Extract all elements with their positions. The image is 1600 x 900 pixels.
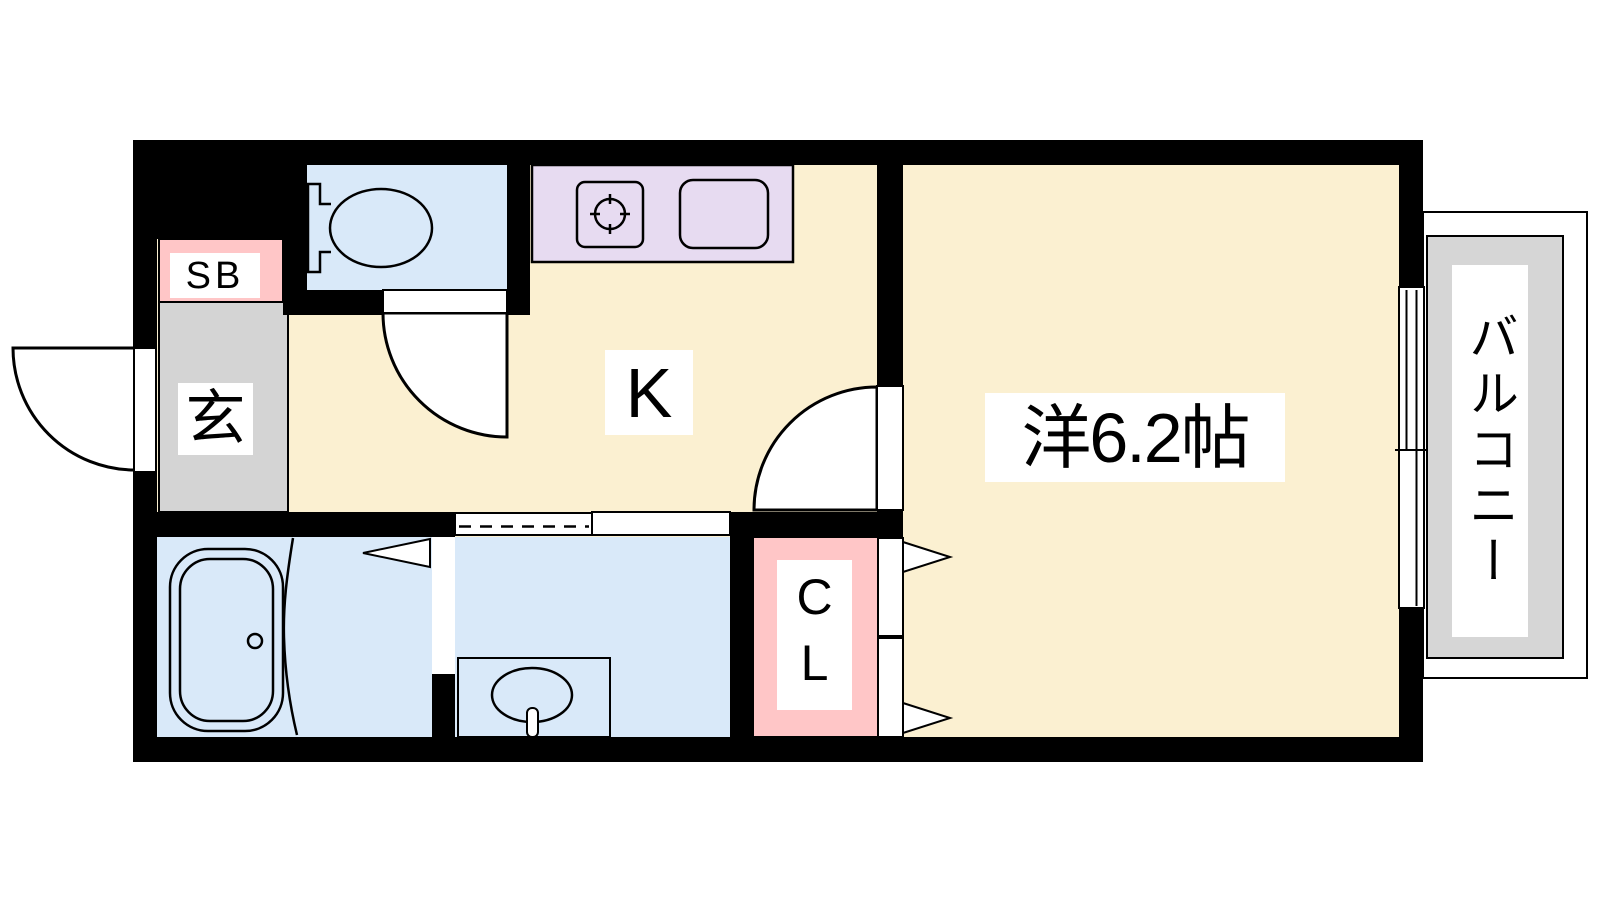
closet-door-leaf-lower bbox=[878, 638, 903, 737]
balcony-window bbox=[1395, 287, 1428, 608]
wall-bath-washroom bbox=[432, 674, 455, 737]
entrance-door-swing bbox=[13, 348, 135, 470]
toilet-room-floor bbox=[307, 165, 507, 290]
wall-toilet-right bbox=[507, 165, 530, 315]
wall-mid-left bbox=[157, 512, 455, 537]
entrance-door-leaf bbox=[134, 348, 156, 472]
wall-block-topleft bbox=[157, 165, 307, 239]
floorplan-canvas: 洋6.2帖 K 玄 SB CL バルコニー bbox=[0, 0, 1600, 900]
entrance-label: 玄 bbox=[178, 383, 253, 455]
closet-door-leaf-upper bbox=[878, 538, 903, 636]
wall-right-lower bbox=[1399, 608, 1423, 762]
window-frame bbox=[1399, 287, 1424, 608]
wall-right-upper bbox=[1399, 140, 1423, 287]
balcony-label: バルコニー bbox=[1452, 265, 1528, 637]
room-door-leaf bbox=[877, 386, 903, 510]
bathroom-floor bbox=[157, 537, 432, 737]
bath-doorway-opening bbox=[432, 537, 455, 674]
western-room-label: 洋6.2帖 bbox=[985, 393, 1285, 482]
toilet-door-leaf bbox=[383, 290, 507, 313]
shoebox-label: SB bbox=[170, 253, 260, 298]
wall-mid-right bbox=[730, 512, 903, 537]
wall-washroom-closet bbox=[730, 537, 753, 737]
wall-top bbox=[133, 140, 1423, 165]
closet-label: CL bbox=[777, 560, 852, 710]
kitchen-label: K bbox=[605, 350, 693, 435]
wall-bottom bbox=[133, 737, 1423, 762]
wall-kitchen-room-upper bbox=[877, 165, 903, 387]
sliding-door-opening bbox=[455, 513, 592, 535]
sliding-door-panel bbox=[592, 512, 730, 535]
